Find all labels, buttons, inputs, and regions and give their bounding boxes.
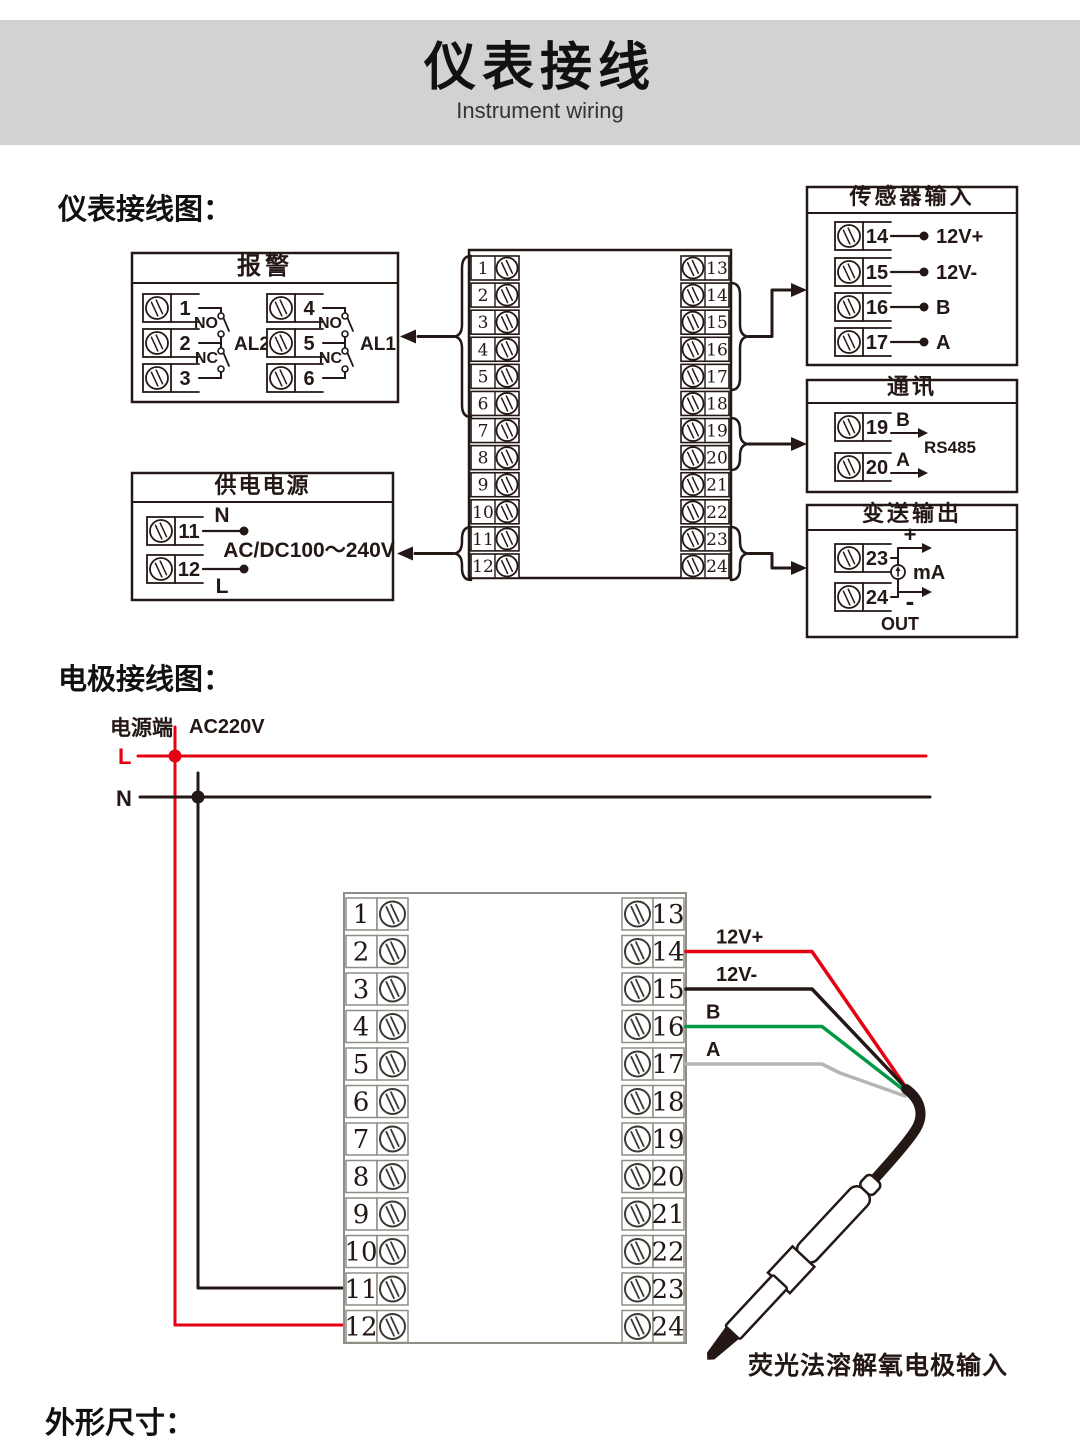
terminal-number: 20 — [866, 457, 888, 479]
terminal-number: 12 — [344, 1313, 377, 1343]
block-terminal-20: 20 — [622, 1161, 685, 1193]
block-terminal-5: 5 — [471, 364, 519, 388]
terminal-screw-icon — [625, 939, 650, 964]
terminal-16: 16 — [835, 293, 891, 321]
live-label: L — [118, 744, 131, 769]
block-terminal-4: 4 — [471, 337, 519, 361]
terminal-number: 14 — [866, 226, 889, 248]
out-label: OUT — [881, 614, 919, 634]
ac220v-label: AC220V — [189, 716, 265, 738]
block-terminal-19: 19 — [681, 419, 729, 443]
terminal-number: 16 — [651, 1013, 684, 1043]
terminal-screw-icon — [380, 902, 405, 927]
terminal-number: 16 — [866, 297, 888, 319]
wire-label-17: A — [706, 1039, 720, 1061]
terminal-screw-icon — [380, 939, 405, 964]
dimensions-heading: 外形尺寸： — [45, 1398, 195, 1442]
neutral-junction-dot — [192, 791, 205, 804]
terminal-number: 2 — [478, 286, 489, 306]
terminal-screw-icon — [625, 1164, 650, 1189]
comm-signal-label: B — [896, 410, 910, 431]
terminal-number: 12 — [472, 557, 494, 577]
block-terminal-12: 12 — [344, 1311, 408, 1343]
block-terminal-12: 12 — [471, 554, 519, 578]
terminal-screw-icon — [625, 1127, 650, 1152]
terminal-number: 23 — [651, 1275, 684, 1305]
terminal-number: 4 — [303, 298, 315, 320]
nc-label: NC — [195, 350, 219, 367]
terminal-number: 13 — [706, 259, 728, 279]
terminal-screw-icon — [380, 1277, 405, 1302]
block-terminal-22: 22 — [622, 1236, 685, 1268]
sensor-wires: 12V+12V-BA — [686, 927, 907, 1097]
terminal-number: 11 — [472, 530, 494, 550]
wire-dot — [920, 338, 929, 347]
terminal-number: 6 — [303, 368, 314, 390]
block-terminal-14: 14 — [681, 283, 729, 307]
plus-label: + — [904, 522, 917, 547]
alarm-box: 报警123NONCAL2456NONCAL1 — [132, 253, 398, 402]
nc-label: NC — [319, 350, 343, 367]
block-terminal-11: 11 — [471, 527, 519, 551]
terminal-number: 18 — [651, 1088, 684, 1118]
terminal-number: 10 — [472, 503, 494, 523]
block-terminal-17: 17 — [681, 364, 729, 388]
wire-label-16: B — [706, 1002, 720, 1024]
terminal-12: 12 — [147, 555, 203, 583]
block-terminal-2: 2 — [471, 283, 519, 307]
sensor-input-box-title: 传感器输入 — [848, 184, 974, 209]
block-terminal-23: 23 — [681, 527, 729, 551]
terminal-screw-icon — [625, 1314, 650, 1339]
block-terminal-4: 4 — [346, 1011, 408, 1043]
block-terminal-10: 10 — [471, 500, 519, 524]
electrode-terminal-block: 113214315416517618719820921102211231224 — [344, 893, 686, 1343]
terminal-number: 23 — [706, 530, 728, 550]
terminal-number: 11 — [178, 521, 199, 543]
wire-dot — [240, 527, 249, 536]
sensor-signal-label: A — [936, 332, 950, 354]
block-terminal-18: 18 — [622, 1086, 685, 1118]
terminal-screw-icon — [380, 1239, 405, 1264]
block-terminal-8: 8 — [346, 1161, 408, 1193]
page-title: 仪表接线 — [424, 41, 656, 96]
block-terminal-7: 7 — [471, 419, 519, 443]
block-terminal-15: 15 — [622, 973, 685, 1005]
terminal-number: 24 — [651, 1313, 684, 1343]
terminal-number: 15 — [706, 313, 728, 333]
sensor-input-box: 传感器输入1412V+1512V-16B17A — [807, 184, 1017, 365]
terminal-screw-icon — [625, 1089, 650, 1114]
wire-dot — [920, 268, 929, 277]
block-terminal-11: 11 — [344, 1273, 408, 1305]
terminal-number: 24 — [866, 587, 889, 609]
block-terminal-6: 6 — [471, 391, 519, 415]
power-terminal-label: 电源端 — [110, 717, 173, 740]
ma-label: mA — [913, 562, 945, 584]
block-terminal-19: 19 — [622, 1123, 685, 1155]
terminal-number: 17 — [706, 367, 728, 387]
terminal-number: 4 — [353, 1013, 370, 1043]
block-terminal-21: 21 — [681, 473, 729, 497]
title-banner: 仪表接线 Instrument wiring — [0, 20, 1080, 145]
alarm-box-title: 报警 — [237, 253, 293, 280]
block-terminal-8: 8 — [471, 446, 519, 470]
sensor-signal-label: B — [936, 297, 950, 319]
terminal-number: 11 — [344, 1275, 377, 1305]
terminal-number: 13 — [651, 900, 684, 930]
terminal-number: 3 — [353, 975, 370, 1005]
block-terminal-9: 9 — [346, 1198, 408, 1230]
terminal-number: 21 — [706, 476, 728, 496]
terminal-number: 23 — [866, 548, 888, 570]
terminal-number: 24 — [706, 557, 728, 577]
terminal-number: 1 — [353, 900, 370, 930]
terminal-number: 8 — [353, 1163, 370, 1193]
no-label: NO — [318, 315, 342, 332]
wire-label-15: 12V- — [716, 964, 757, 986]
probe-body — [696, 1169, 886, 1370]
terminal-number: 5 — [303, 333, 314, 355]
central-terminal-block: 113214315416517618719820921102211231224 — [469, 250, 731, 578]
terminal-number: 5 — [353, 1050, 370, 1080]
block-terminal-3: 3 — [471, 310, 519, 334]
live-junction-dot — [169, 750, 182, 763]
terminal-number: 8 — [478, 449, 489, 469]
block-terminal-18: 18 — [681, 391, 729, 415]
terminal-14: 14 — [835, 222, 891, 250]
power-box-title: 供电电源 — [213, 473, 310, 498]
terminal-number: 20 — [651, 1163, 684, 1193]
terminal-screw-icon — [380, 1089, 405, 1114]
sensor-signal-label: 12V+ — [936, 226, 983, 248]
terminal-23: 23 — [835, 544, 891, 572]
block-terminal-15: 15 — [681, 310, 729, 334]
terminal-screw-icon — [380, 977, 405, 1002]
terminal-screw-icon — [625, 1014, 650, 1039]
terminal-screw-icon — [625, 1202, 650, 1227]
terminal-15: 15 — [835, 258, 891, 286]
terminal-number: 3 — [478, 313, 489, 333]
terminal-screw-icon — [625, 1052, 650, 1077]
output-box: 变送输出2324+-mAOUT — [807, 501, 1017, 637]
terminal-17: 17 — [835, 328, 891, 356]
block-terminal-16: 16 — [622, 1011, 685, 1043]
block-terminal-5: 5 — [346, 1048, 408, 1080]
block-terminal-24: 24 — [622, 1311, 685, 1343]
terminal-number: 20 — [706, 449, 728, 469]
terminal-number: 22 — [651, 1238, 684, 1268]
terminal-number: 15 — [651, 975, 684, 1005]
power-line-label: L — [216, 575, 229, 598]
block-terminal-9: 9 — [471, 473, 519, 497]
wire-dot — [240, 565, 249, 574]
terminal-screw-icon — [380, 1164, 405, 1189]
wire-dot — [920, 232, 929, 241]
terminal-screw-icon — [625, 902, 650, 927]
block-terminal-1: 1 — [346, 898, 408, 930]
terminal-screw-icon — [625, 1239, 650, 1264]
neutral-label: N — [116, 786, 132, 811]
terminal-number: 17 — [866, 332, 888, 354]
terminal-screw-icon — [625, 1277, 650, 1302]
terminal-screw-icon — [380, 1014, 405, 1039]
do-probe: 荧光法溶解氧电极输入 — [696, 1089, 1008, 1380]
electrode-wiring-diagram: 电源端AC220VLN11321431541651761871982092110… — [0, 650, 1080, 1443]
terminal-number: 16 — [706, 340, 728, 360]
terminal-11: 11 — [147, 517, 203, 545]
terminal-number: 15 — [866, 262, 888, 284]
rs485-label: RS485 — [924, 438, 976, 457]
terminal-20: 20 — [835, 453, 891, 481]
terminal-number: 4 — [478, 340, 489, 360]
block-terminal-1: 1 — [471, 256, 519, 280]
block-terminal-24: 24 — [681, 554, 729, 578]
wire-label-14: 12V+ — [716, 927, 763, 949]
power-voltage-label: AC/DC100～240V — [223, 539, 395, 562]
power-line-label: N — [214, 504, 229, 527]
sensor-signal-label: 12V- — [936, 262, 977, 284]
terminal-number: 7 — [353, 1125, 370, 1155]
comm-box-title: 通讯 — [887, 374, 937, 399]
terminal-number: 17 — [651, 1050, 684, 1080]
block-terminal-6: 6 — [346, 1086, 408, 1118]
block-terminal-16: 16 — [681, 337, 729, 361]
terminal-number: 2 — [353, 938, 370, 968]
power-box: 供电电源11N12LAC/DC100～240V — [132, 473, 395, 600]
terminal-number: 14 — [706, 286, 728, 306]
terminal-number: 18 — [706, 394, 728, 414]
terminal-number: 21 — [651, 1200, 684, 1230]
terminal-number: 1 — [478, 259, 489, 279]
terminal-screw-icon — [380, 1052, 405, 1077]
block-terminal-23: 23 — [622, 1273, 685, 1305]
terminal-number: 12 — [178, 559, 200, 581]
terminal-number: 10 — [344, 1238, 377, 1268]
alarm-group-label: AL2 — [234, 334, 270, 355]
block-terminal-22: 22 — [681, 500, 729, 524]
terminal-screw-icon — [380, 1202, 405, 1227]
terminal-number: 9 — [478, 476, 489, 496]
page: 仪表接线 Instrument wiring 仪表接线图： 1132143154… — [0, 0, 1080, 1443]
terminal-number: 19 — [706, 422, 728, 442]
terminal-number: 22 — [706, 503, 728, 523]
block-terminal-14: 14 — [622, 936, 685, 968]
block-terminal-3: 3 — [346, 973, 408, 1005]
comm-box: 通讯19B20ARS485 — [807, 374, 1017, 492]
terminal-screw-icon — [380, 1314, 405, 1339]
terminal-24: 24 — [835, 583, 891, 611]
terminal-number: 5 — [478, 367, 489, 387]
terminal-number: 14 — [651, 938, 684, 968]
block-terminal-20: 20 — [681, 446, 729, 470]
wire-dot — [920, 303, 929, 312]
probe-label: 荧光法溶解氧电极输入 — [748, 1351, 1008, 1380]
block-terminal-13: 13 — [681, 256, 729, 280]
terminal-screw-icon — [625, 977, 650, 1002]
block-terminal-21: 21 — [622, 1198, 685, 1230]
page-subtitle: Instrument wiring — [456, 98, 624, 124]
alarm-group-label: AL1 — [360, 334, 396, 355]
block-terminal-17: 17 — [622, 1048, 685, 1080]
terminal-19: 19 — [835, 413, 891, 441]
block-terminal-2: 2 — [346, 936, 408, 968]
terminal-number: 9 — [353, 1200, 370, 1230]
terminal-number: 19 — [866, 417, 888, 439]
block-terminal-10: 10 — [344, 1236, 408, 1268]
terminal-number: 19 — [651, 1125, 684, 1155]
terminal-number: 2 — [179, 333, 190, 355]
terminal-number: 7 — [478, 422, 489, 442]
block-terminal-7: 7 — [346, 1123, 408, 1155]
block-terminal-13: 13 — [622, 898, 685, 930]
minus-label: - — [906, 586, 915, 616]
terminal-number: 6 — [478, 394, 489, 414]
no-label: NO — [194, 315, 218, 332]
terminal-number: 3 — [179, 368, 190, 390]
comm-signal-label: A — [896, 450, 910, 471]
terminal-number: 6 — [353, 1088, 370, 1118]
terminal-screw-icon — [380, 1127, 405, 1152]
terminal-number: 1 — [179, 298, 190, 320]
instrument-wiring-diagram: 113214315416517618719820921102211231224报… — [0, 170, 1080, 650]
